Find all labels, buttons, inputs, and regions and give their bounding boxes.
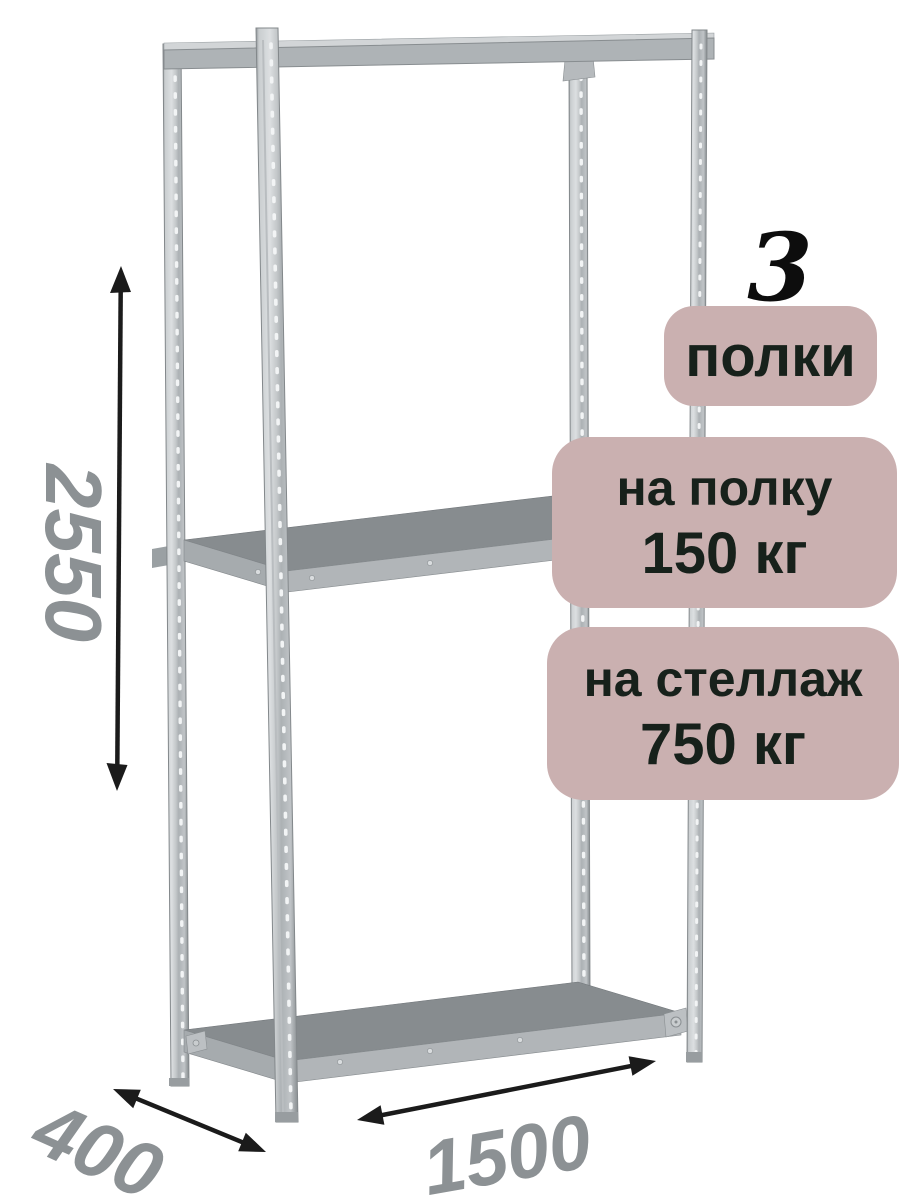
- per-rack-load-badge: на стеллаж 750 кг: [547, 627, 899, 800]
- per-rack-load-caption: на стеллаж: [584, 648, 863, 710]
- shelf-count-badge: полки: [664, 306, 877, 406]
- shelf-count-label: полки: [685, 323, 856, 390]
- top-shelf-beam: [164, 33, 714, 81]
- per-shelf-load-badge: на полку 150 кг: [552, 437, 897, 608]
- height-dimension-label: 2550: [33, 403, 113, 703]
- per-shelf-load-caption: на полку: [617, 457, 833, 519]
- per-rack-load-value: 750 кг: [640, 710, 806, 780]
- post-back-left: [163, 44, 189, 1086]
- product-image: 3 полки на полку 150 кг на стеллаж 750 к…: [0, 0, 900, 1200]
- shelf-count-number: 3: [718, 222, 842, 314]
- per-shelf-load-value: 150 кг: [641, 519, 807, 589]
